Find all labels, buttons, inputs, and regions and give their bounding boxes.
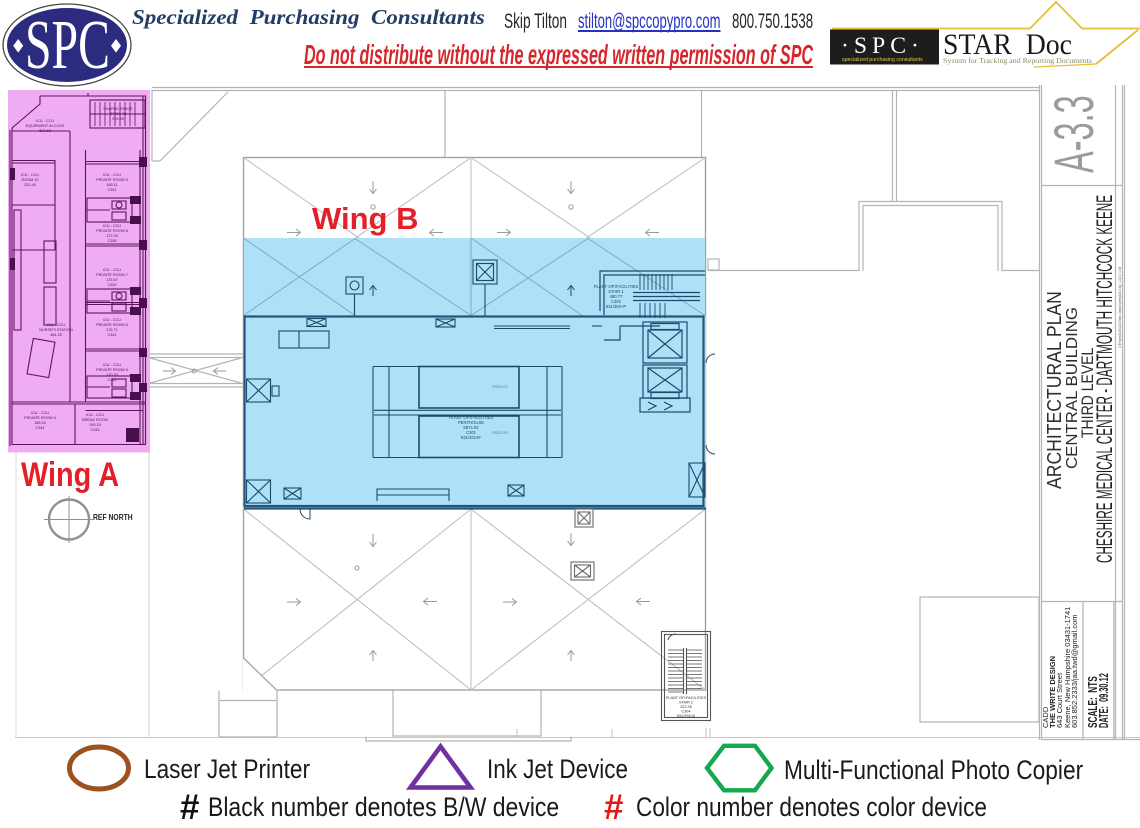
svg-text:ROOM 10: ROOM 10 <box>21 178 38 182</box>
svg-text:ICU - CCU: ICU - CCU <box>103 173 121 177</box>
svg-text:PLANT OP./FACILITIES: PLANT OP./FACILITIES <box>666 696 707 700</box>
svg-text:C339: C339 <box>107 283 116 287</box>
svg-text:STAIR 2: STAIR 2 <box>679 701 693 705</box>
svg-text:PRIVATE ROOM 6: PRIVATE ROOM 6 <box>96 323 128 327</box>
svg-text:578.35: 578.35 <box>112 117 124 121</box>
svg-text:593.68: 593.68 <box>39 129 51 133</box>
svg-text:175.57: 175.57 <box>106 278 118 282</box>
svg-text:PRIVATE ROOM 5: PRIVATE ROOM 5 <box>96 368 128 372</box>
svg-text:C343: C343 <box>90 428 99 432</box>
svg-text:C342: C342 <box>107 378 116 382</box>
svg-text:PRIVATE ROOM 7: PRIVATE ROOM 7 <box>96 273 128 277</box>
svg-text:172.03: 172.03 <box>106 234 118 238</box>
svg-text:PRIVATE ROOM 4: PRIVATE ROOM 4 <box>24 416 56 420</box>
svg-text:NURSE'S STATION: NURSE'S STATION <box>39 328 73 332</box>
svg-text:STAIR 72: STAIR 72 <box>110 112 126 116</box>
svg-text:ICU - CCU: ICU - CCU <box>21 173 39 177</box>
svg-text:SHARED SPACE: SHARED SPACE <box>103 107 133 111</box>
svg-text:222.05: 222.05 <box>680 705 692 709</box>
svg-text:175.71: 175.71 <box>106 328 118 332</box>
svg-text:464.25: 464.25 <box>50 333 62 337</box>
svg-text:PRIVATE ROOM 9: PRIVATE ROOM 9 <box>96 178 128 182</box>
svg-text:165.00: 165.00 <box>34 421 46 425</box>
svg-text:831/4014F: 831/4014F <box>461 435 481 440</box>
svg-text:C331: C331 <box>107 188 116 192</box>
svg-text:ICU - CCU: ICU - CCU <box>47 323 65 327</box>
svg-text:BREAK ROOM: BREAK ROOM <box>82 418 108 422</box>
svg-text:ICU - CCU: ICU - CCU <box>36 119 54 123</box>
svg-text:831/931(4): 831/931(4) <box>677 714 696 718</box>
svg-text:249.24: 249.24 <box>89 423 101 427</box>
svg-text:C341: C341 <box>107 333 116 337</box>
svg-text:C304: C304 <box>681 710 690 714</box>
svg-text:ICU - CCU: ICU - CCU <box>31 411 49 415</box>
svg-text:ICU - CCU: ICU - CCU <box>103 318 121 322</box>
svg-text:ICU - CCU: ICU - CCU <box>103 363 121 367</box>
svg-text:ICU - CCU: ICU - CCU <box>86 413 104 417</box>
svg-text:ICU - CCU: ICU - CCU <box>103 224 121 228</box>
svg-text:170.33: 170.33 <box>106 373 118 377</box>
svg-text:C344: C344 <box>35 426 44 430</box>
svg-text:98dxxx2: 98dxxx2 <box>492 384 508 389</box>
svg-text:183.11: 183.11 <box>106 183 117 187</box>
svg-text:ICU - CCU: ICU - CCU <box>103 268 121 272</box>
svg-text:EQUIPMENT ALCOVE: EQUIPMENT ALCOVE <box>26 124 65 128</box>
svg-text:220.44: 220.44 <box>24 183 36 187</box>
svg-text:98dxxx6: 98dxxx6 <box>492 430 508 435</box>
svg-text:831/450+P: 831/450+P <box>606 304 627 309</box>
svg-text:C338: C338 <box>107 239 116 243</box>
svg-text:PRIVATE ROOM 8: PRIVATE ROOM 8 <box>96 229 128 233</box>
